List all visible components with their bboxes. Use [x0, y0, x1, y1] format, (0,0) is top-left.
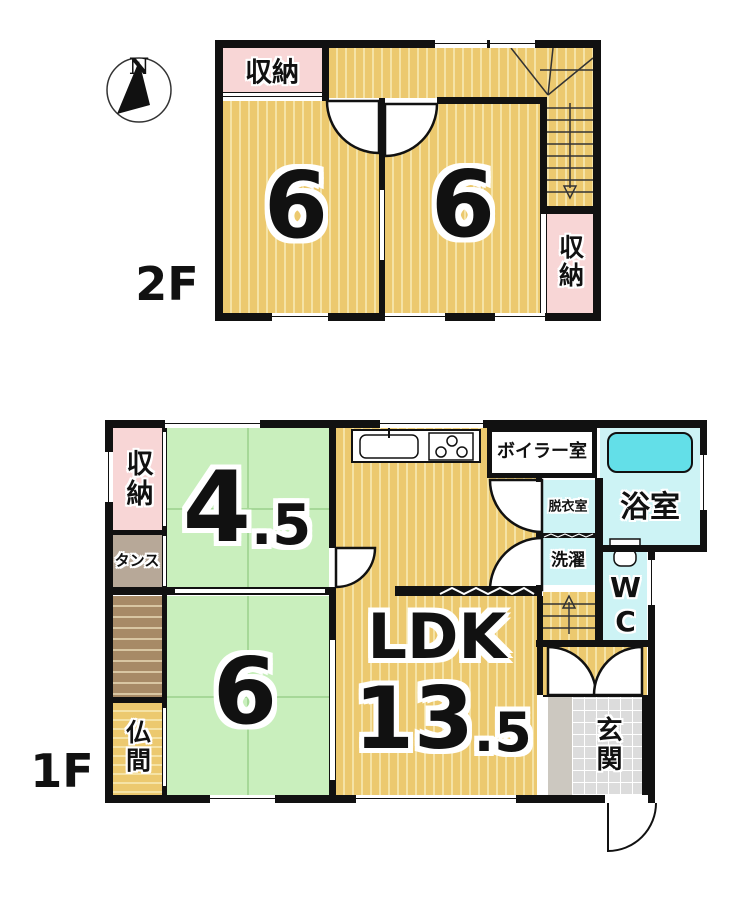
laundry-label: 洗濯 — [551, 553, 585, 570]
floor2-plan: 収納 6 6 収納 — [215, 40, 601, 321]
wc-label: WC — [611, 571, 639, 639]
boiler-label: ボイラー室 — [497, 443, 587, 461]
sliding-door-6-ldk — [329, 640, 336, 780]
window — [105, 452, 113, 502]
entrance-door-swing — [580, 795, 690, 880]
sliding-door-closet-br-2f — [540, 214, 547, 313]
dressing-label: 脱衣室 — [548, 501, 587, 514]
floorplan-page: N 2F 1F — [0, 0, 740, 897]
outer-wall-left-2f — [215, 40, 223, 321]
floor2-label: 2F — [135, 261, 198, 307]
tansu-label: タンス — [115, 554, 160, 569]
wall — [540, 98, 547, 206]
wall-ldk-hall — [537, 596, 543, 695]
window — [490, 40, 535, 48]
floor1-plan: 収納 タンス 4 .5 6 仏間 LDK 13 .5 ボイラー室 浴室 脱衣室 … — [105, 420, 707, 803]
window — [272, 313, 328, 321]
wall-wc-bottom — [536, 640, 655, 647]
wall-closet-tansu — [113, 530, 162, 535]
window — [648, 560, 655, 605]
wall-kitchen-wet1 — [536, 478, 542, 482]
window — [380, 420, 483, 428]
window — [210, 795, 275, 803]
floor1-label: 1F — [30, 748, 93, 794]
genkan-label: 玄関 — [594, 716, 620, 774]
room-6-left-label: 6 — [264, 160, 328, 252]
door-arc-hall-right — [594, 647, 642, 695]
door-arc-hall-left — [548, 647, 596, 695]
sliding-door-divider-2f — [379, 190, 385, 260]
window — [495, 313, 545, 321]
outer-wall-right-2f — [593, 40, 601, 321]
ldk-label: LDK — [367, 606, 506, 668]
butsuma-label: 仏間 — [125, 719, 150, 775]
wall-kitchen-wet3 — [536, 585, 542, 596]
closet-2f-topleft-label: 収納 — [245, 60, 299, 87]
closet-2f-bottomright-label: 収納 — [558, 234, 583, 290]
room-6-1f-label: 6 — [213, 646, 277, 738]
room-6-right-label: 6 — [431, 159, 495, 251]
window — [435, 40, 487, 48]
window — [385, 313, 445, 321]
sliding-door-tansu — [162, 536, 167, 586]
outer-wall-top-2f — [215, 40, 601, 48]
folding-door-zigzag — [438, 586, 536, 596]
sliding-door-closet-1f — [162, 432, 167, 526]
wall — [322, 48, 329, 101]
staircase-2f — [511, 48, 593, 192]
ldk-size-label: 13 .5 — [354, 682, 532, 758]
door-arc-room-left-2f — [327, 101, 379, 153]
bath-label: 浴室 — [620, 493, 680, 523]
wall-stairs-butsuma — [113, 697, 167, 703]
closet-1f-label: 収納 — [124, 449, 151, 509]
sliding-door-closet-2f — [223, 92, 322, 97]
window — [356, 795, 516, 803]
door-arc-corridor — [490, 538, 542, 590]
wall — [437, 97, 547, 104]
bathtub-icon — [608, 433, 692, 472]
sink-icon — [360, 435, 418, 458]
folding-door-zigzag-small — [542, 533, 595, 538]
door-arc-dressing — [490, 480, 542, 532]
staircase-1f-right — [543, 602, 595, 634]
compass-icon: N — [100, 48, 180, 128]
sliding-door-45-6 — [175, 588, 325, 594]
wall-45-kitchen — [329, 420, 336, 548]
window — [700, 455, 707, 510]
door-arc-room45 — [336, 548, 375, 587]
door-arc-room-right-2f — [385, 104, 437, 156]
wall — [540, 206, 601, 214]
wall-wet-right — [595, 478, 603, 640]
wall-kitchen-ldk — [395, 586, 438, 596]
compass-north-label: N — [129, 54, 149, 80]
window — [165, 420, 260, 428]
room-45-label: 4 .5 — [183, 465, 311, 551]
sliding-door-butsuma — [162, 708, 167, 786]
entrance-door-gap — [605, 795, 648, 803]
